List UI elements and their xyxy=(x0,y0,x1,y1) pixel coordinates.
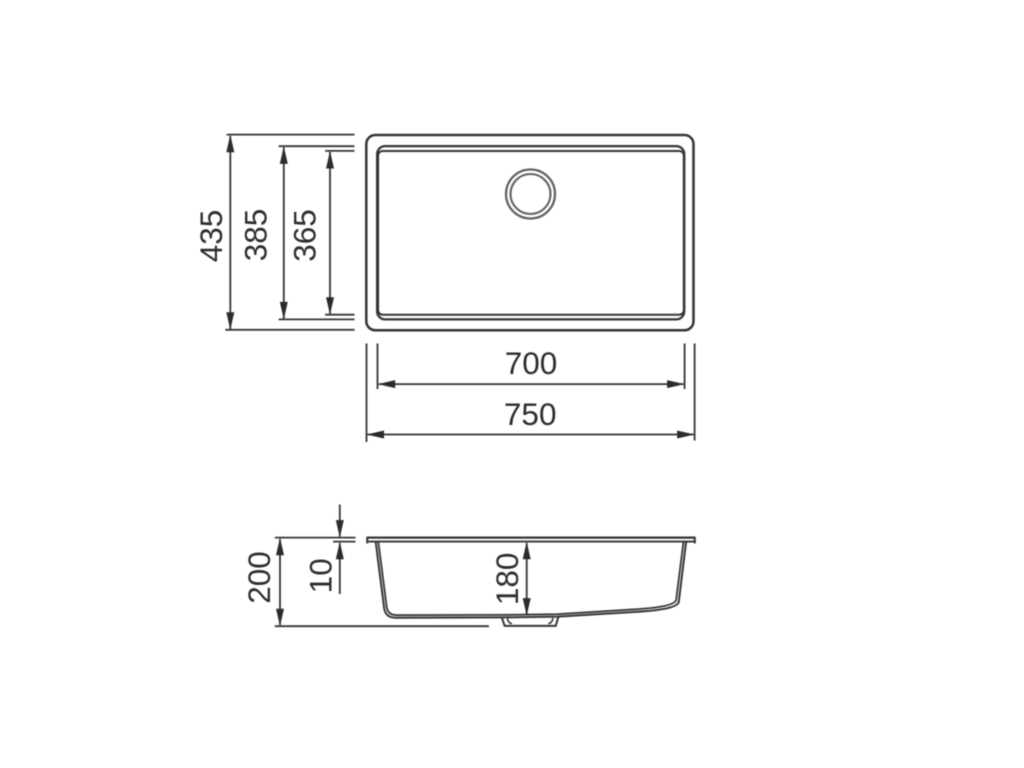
svg-text:10: 10 xyxy=(303,558,339,593)
svg-text:435: 435 xyxy=(193,210,229,263)
svg-text:700: 700 xyxy=(505,345,558,381)
svg-text:180: 180 xyxy=(489,553,525,606)
svg-text:385: 385 xyxy=(238,209,274,262)
svg-text:365: 365 xyxy=(287,209,323,262)
svg-text:750: 750 xyxy=(504,396,557,432)
svg-text:200: 200 xyxy=(241,551,277,604)
